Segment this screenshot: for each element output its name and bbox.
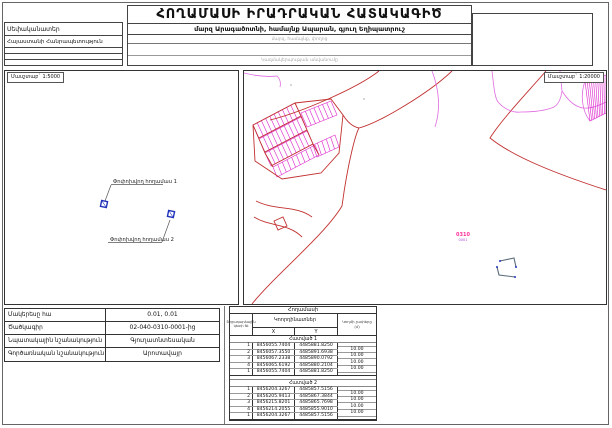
coordinates-table: Հողամասի Շրջադարձային կետի № Կոորդինատնե… bbox=[229, 306, 377, 421]
point-number: 3 bbox=[230, 400, 253, 406]
side-length: 10.00 bbox=[338, 410, 376, 417]
side-length-column: 10.0010.0010.0010.00 bbox=[338, 343, 376, 375]
overview-map-panel: Մասշտաբ` 1:20000 bbox=[243, 70, 607, 305]
point-row: 18456055.74044485881.8250 bbox=[230, 343, 338, 350]
col-coordinates-label: Կոորդինատներ bbox=[253, 314, 337, 328]
coords-sections: Հատված 118456055.74044485881.82502845605… bbox=[230, 336, 376, 420]
table-row: Գործառնական նշանակություն Արոտավայր bbox=[5, 348, 219, 361]
coords-table-title: Հողամասի bbox=[230, 307, 376, 314]
side-length: 10.00 bbox=[338, 346, 376, 353]
roads bbox=[252, 71, 606, 304]
col-side-length: Կողմի չափերը (մ) bbox=[338, 314, 376, 335]
table-row: Նպատակային նշանակություն Գյուղատնտեսական bbox=[5, 335, 219, 348]
point-x: 8456215.8201 bbox=[253, 400, 295, 406]
point-x: 8456057.3550 bbox=[253, 350, 295, 356]
section-title: Հատված 1 bbox=[230, 336, 376, 343]
point-x: 8456055.7404 bbox=[253, 343, 295, 349]
leader-line-1 bbox=[105, 185, 111, 201]
table-row: Մակերեսը հա 0.01, 0.01 bbox=[5, 309, 219, 322]
cadastral-plan-page: Սեփականատեր Հայաստանի Հանրապետություն ՀՈ… bbox=[0, 0, 612, 428]
block-subcode-label: 0001 bbox=[459, 238, 468, 242]
coords-table-header: Շրջադարձային կետի № Կոորդինատներ X Y Կող… bbox=[230, 314, 376, 336]
page-title: ՀՈՂԱՄԱՍԻ ԻՐԱԴՐԱԿԱՆ ՀԱՏԱԿԱԳԻԾ bbox=[128, 6, 471, 24]
point-y: 4485867.3844 bbox=[295, 394, 338, 400]
owner-box: Սեփականատեր Հայաստանի Հանրապետություն bbox=[4, 22, 123, 66]
point-x: 8456067.2338 bbox=[253, 356, 295, 362]
attr-label: Ծածկագիր bbox=[5, 322, 106, 334]
point-x: 8456065.6192 bbox=[253, 363, 295, 369]
plot2-marker-icon bbox=[167, 210, 174, 217]
plot1-label: Փոփոխվող հողամաս 1 bbox=[113, 179, 177, 185]
scale-label-20000: Մասշտաբ` 1:20000 bbox=[544, 72, 604, 83]
point-number: 4 bbox=[230, 407, 253, 413]
col-point-number: Շրջադարձային կետի № bbox=[230, 314, 253, 335]
section-body: 18456204.32674485857.515628456205.941344… bbox=[230, 387, 376, 420]
point-y: 4485857.5156 bbox=[295, 413, 338, 420]
point-x: 8456214.2055 bbox=[253, 407, 295, 413]
point-number: 3 bbox=[230, 356, 253, 362]
point-number: 1 bbox=[230, 413, 253, 420]
point-row: 38456067.23384485890.0792 bbox=[230, 356, 338, 363]
location-hint: մարզ, համայնք, փողոց bbox=[128, 35, 471, 44]
point-y: 4485891.6938 bbox=[295, 350, 338, 356]
attr-label: Գործառնական նշանակություն bbox=[5, 348, 106, 361]
point-x: 8456205.9413 bbox=[253, 394, 295, 400]
header-right-box bbox=[472, 13, 593, 66]
point-number: 2 bbox=[230, 394, 253, 400]
point-row: 18456055.74044485881.8250 bbox=[230, 369, 338, 376]
point-y: 4485880.2104 bbox=[295, 363, 338, 369]
point-y: 4485855.9010 bbox=[295, 407, 338, 413]
point-number: 4 bbox=[230, 363, 253, 369]
side-length: 10.00 bbox=[338, 397, 376, 404]
point-row: 18456204.32674485857.5156 bbox=[230, 387, 338, 394]
point-y: 4485881.8250 bbox=[295, 369, 338, 376]
detail-map-svg: Փոփոխվող հողամաս 1 Փոփոխվող հողամաս 2 bbox=[5, 71, 238, 304]
point-y: 4485865.7698 bbox=[295, 400, 338, 406]
point-x: 8456204.3267 bbox=[253, 413, 295, 420]
point-number: 1 bbox=[230, 369, 253, 376]
point-number: 2 bbox=[230, 350, 253, 356]
attr-value: 02-040-0310-0001-ից bbox=[106, 322, 219, 334]
map-speck bbox=[290, 84, 291, 85]
side-length: 10.00 bbox=[338, 390, 376, 397]
attr-value: Արոտավայր bbox=[106, 348, 219, 361]
attr-label: Նպատակային նշանակություն bbox=[5, 335, 106, 347]
point-number: 1 bbox=[230, 387, 253, 393]
side-length: 10.00 bbox=[338, 353, 376, 360]
col-coordinates: Կոորդինատներ X Y bbox=[253, 314, 338, 335]
section-body: 18456055.74044485881.825028456057.355044… bbox=[230, 343, 376, 376]
divider bbox=[224, 306, 225, 424]
plot1-marker-icon bbox=[100, 200, 107, 207]
side-length-column: 10.0010.0010.0010.00 bbox=[338, 387, 376, 419]
point-x: 8456204.3267 bbox=[253, 387, 295, 393]
col-x: X bbox=[253, 328, 295, 336]
attr-value: Գյուղատնտեսական bbox=[106, 335, 219, 347]
point-rows: 18456055.74044485881.825028456057.355044… bbox=[230, 343, 338, 375]
side-length: 10.00 bbox=[338, 366, 376, 373]
point-x: 8456055.7404 bbox=[253, 369, 295, 376]
overview-map-svg: 0310 0001 bbox=[244, 71, 606, 304]
owner-value: Հայաստանի Հանրապետություն bbox=[5, 36, 122, 48]
plot2-label: Փոփոխվող հողամաս 2 bbox=[110, 237, 174, 243]
location-line: մարզ Արագածոտնի, համայնք Ապարան, գյուղ Ե… bbox=[128, 24, 471, 35]
point-y: 4485857.5156 bbox=[295, 387, 338, 393]
owner-label: Սեփականատեր bbox=[5, 23, 122, 36]
scale-label-5000: Մասշտաբ` 1:5000 bbox=[7, 72, 64, 83]
section-title: Հատված 2 bbox=[230, 380, 376, 387]
point-row: 38456215.82014485865.7698 bbox=[230, 400, 338, 407]
attributes-table: Մակերեսը հա 0.01, 0.01 Ծածկագիր 02-040-0… bbox=[4, 308, 220, 362]
point-number: 1 bbox=[230, 343, 253, 349]
attr-label: Մակերեսը հա bbox=[5, 309, 106, 321]
title-box-empty-row bbox=[128, 44, 471, 56]
col-y: Y bbox=[295, 328, 337, 336]
org-hint: Կազմակերպության անվանումը bbox=[128, 56, 471, 66]
point-row: 18456204.32674485857.5156 bbox=[230, 413, 338, 420]
attr-value: 0.01, 0.01 bbox=[106, 309, 219, 321]
point-rows: 18456204.32674485857.515628456205.941344… bbox=[230, 387, 338, 419]
point-y: 4485881.8250 bbox=[295, 343, 338, 349]
map-speck bbox=[363, 98, 364, 99]
point-y: 4485890.0792 bbox=[295, 356, 338, 362]
title-box: ՀՈՂԱՄԱՍԻ ԻՐԱԴՐԱԿԱՆ ՀԱՏԱԿԱԳԻԾ մարզ Արագած… bbox=[127, 5, 472, 66]
detail-map-panel: Մասշտաբ` 1:5000 Փոփոխվող հողամաս 1 Փոփոխ… bbox=[4, 70, 239, 305]
table-row: Ծածկագիր 02-040-0310-0001-ից bbox=[5, 322, 219, 335]
